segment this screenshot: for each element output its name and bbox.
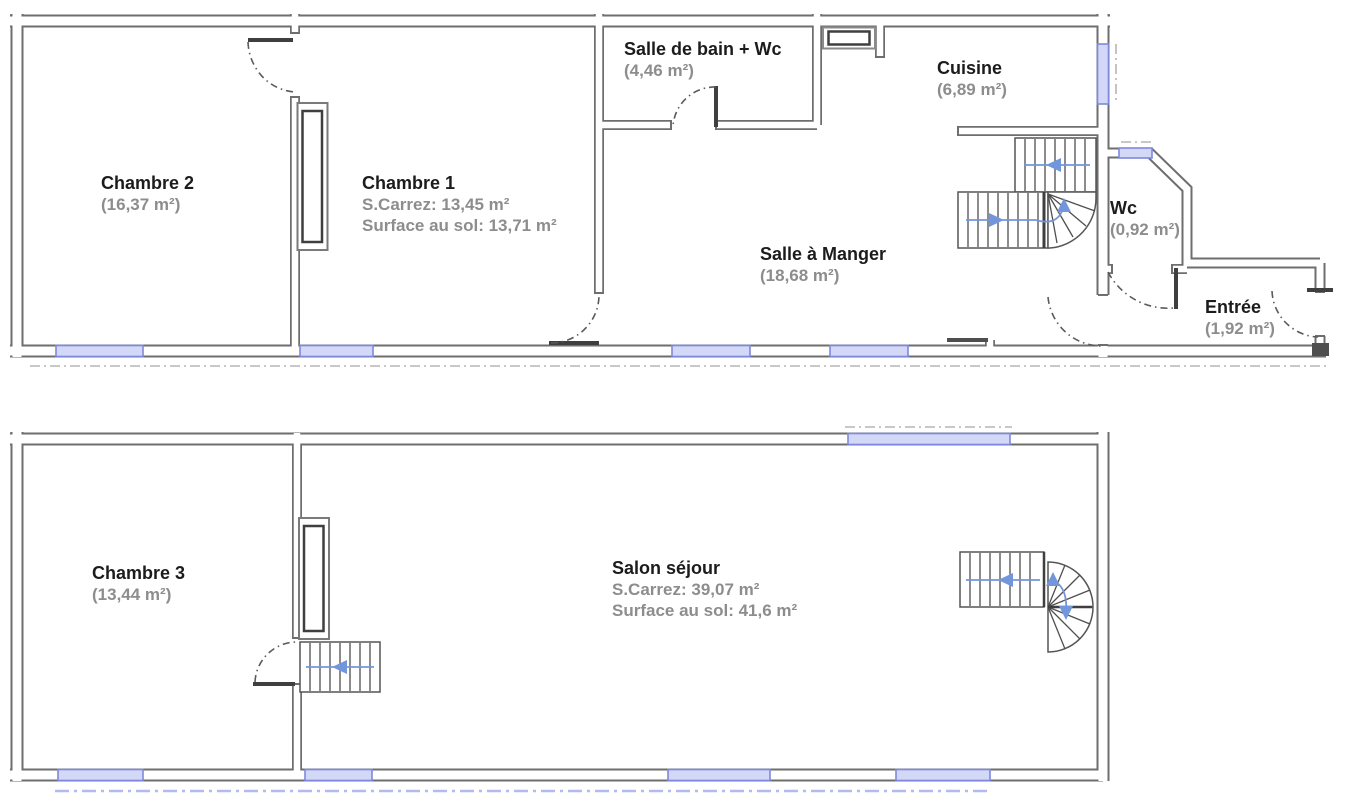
window bbox=[672, 346, 750, 357]
room-area: Surface au sol: 41,6 m² bbox=[612, 600, 797, 621]
window bbox=[848, 434, 1010, 445]
floor-plan-drawing bbox=[0, 0, 1349, 800]
room-area: (16,37 m²) bbox=[101, 194, 194, 215]
closet-door bbox=[303, 111, 323, 242]
room-name: Chambre 1 bbox=[362, 172, 557, 194]
room-area: (1,92 m²) bbox=[1205, 318, 1275, 339]
window bbox=[56, 346, 143, 357]
window bbox=[668, 770, 770, 781]
room-name: Chambre 2 bbox=[101, 172, 194, 194]
room-label-wc: Wc (0,92 m²) bbox=[1110, 197, 1180, 240]
room-name: Salle à Manger bbox=[760, 243, 886, 265]
room-label-entree: Entrée (1,92 m²) bbox=[1205, 296, 1275, 339]
room-area: (6,89 m²) bbox=[937, 79, 1007, 100]
room-area: (18,68 m²) bbox=[760, 265, 886, 286]
room-area: S.Carrez: 13,45 m² bbox=[362, 194, 557, 215]
room-label-chambre-1: Chambre 1 S.Carrez: 13,45 m² Surface au … bbox=[362, 172, 557, 236]
room-label-salle-de-bain-wc: Salle de bain + Wc (4,46 m²) bbox=[624, 38, 782, 81]
window bbox=[58, 770, 143, 781]
window bbox=[896, 770, 990, 781]
room-label-chambre-3: Chambre 3 (13,44 m²) bbox=[92, 562, 185, 605]
room-area: (13,44 m²) bbox=[92, 584, 185, 605]
room-area: S.Carrez: 39,07 m² bbox=[612, 579, 797, 600]
window bbox=[1098, 44, 1109, 104]
room-name: Salon séjour bbox=[612, 557, 797, 579]
staircase-chambre-3 bbox=[300, 642, 380, 692]
room-area: Surface au sol: 13,71 m² bbox=[362, 215, 557, 236]
room-label-cuisine: Cuisine (6,89 m²) bbox=[937, 57, 1007, 100]
walls bbox=[10, 14, 1326, 781]
room-label-salle-a-manger: Salle à Manger (18,68 m²) bbox=[760, 243, 886, 286]
room-name: Entrée bbox=[1205, 296, 1275, 318]
room-label-chambre-2: Chambre 2 (16,37 m²) bbox=[101, 172, 194, 215]
room-name: Salle de bain + Wc bbox=[624, 38, 782, 60]
room-area: (0,92 m²) bbox=[1110, 219, 1180, 240]
staircase-salon bbox=[960, 552, 1093, 652]
room-name: Wc bbox=[1110, 197, 1180, 219]
window bbox=[830, 346, 908, 357]
window bbox=[300, 346, 373, 357]
floor-plan: Chambre 2 (16,37 m²) Chambre 1 S.Carrez:… bbox=[0, 0, 1349, 800]
room-name: Chambre 3 bbox=[92, 562, 185, 584]
window bbox=[305, 770, 372, 781]
room-name: Cuisine bbox=[937, 57, 1007, 79]
room-area: (4,46 m²) bbox=[624, 60, 782, 81]
room-label-salon-sejour: Salon séjour S.Carrez: 39,07 m² Surface … bbox=[612, 557, 797, 621]
closets bbox=[298, 28, 876, 640]
staircase-upper-floor bbox=[958, 138, 1096, 248]
window bbox=[1119, 148, 1152, 158]
closet-door bbox=[304, 526, 324, 631]
wall-fixture-inner bbox=[829, 32, 870, 45]
